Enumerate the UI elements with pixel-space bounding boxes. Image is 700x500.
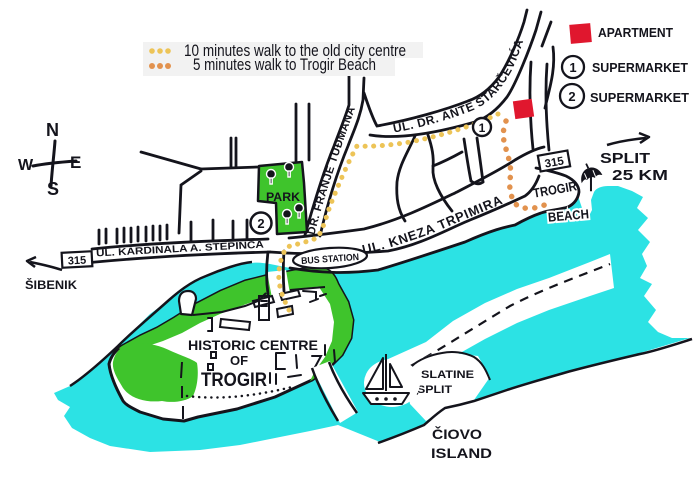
svg-text:2: 2 <box>568 89 575 104</box>
svg-text:N: N <box>46 120 59 140</box>
svg-text:1: 1 <box>569 60 576 75</box>
svg-text:ČIOVO: ČIOVO <box>432 425 482 442</box>
svg-text:SPLIT: SPLIT <box>600 150 650 167</box>
svg-text:APARTMENT: APARTMENT <box>598 26 673 40</box>
svg-text:25 KM: 25 KM <box>612 167 668 184</box>
svg-text:SUPERMARKET: SUPERMARKET <box>590 90 689 105</box>
svg-text:ISLAND: ISLAND <box>431 445 492 461</box>
svg-text:OF: OF <box>230 353 248 368</box>
svg-text:315: 315 <box>68 255 87 268</box>
svg-text:SUPERMARKET: SUPERMARKET <box>592 61 688 75</box>
svg-text:S: S <box>47 179 59 199</box>
svg-text:W: W <box>18 157 34 174</box>
svg-text:1: 1 <box>479 121 486 135</box>
svg-text:HISTORIC CENTRE: HISTORIC CENTRE <box>188 337 318 353</box>
svg-text:E: E <box>70 153 81 172</box>
svg-text:2: 2 <box>257 216 264 231</box>
svg-text:5 minutes walk to Trogir Beach: 5 minutes walk to Trogir Beach <box>193 56 376 74</box>
svg-text:SPLIT: SPLIT <box>417 384 452 396</box>
svg-text:PARK: PARK <box>266 190 300 204</box>
svg-text:SLATINE: SLATINE <box>421 369 474 381</box>
svg-text:TROGIR: TROGIR <box>201 370 267 391</box>
svg-text:ŠIBENIK: ŠIBENIK <box>25 277 77 292</box>
